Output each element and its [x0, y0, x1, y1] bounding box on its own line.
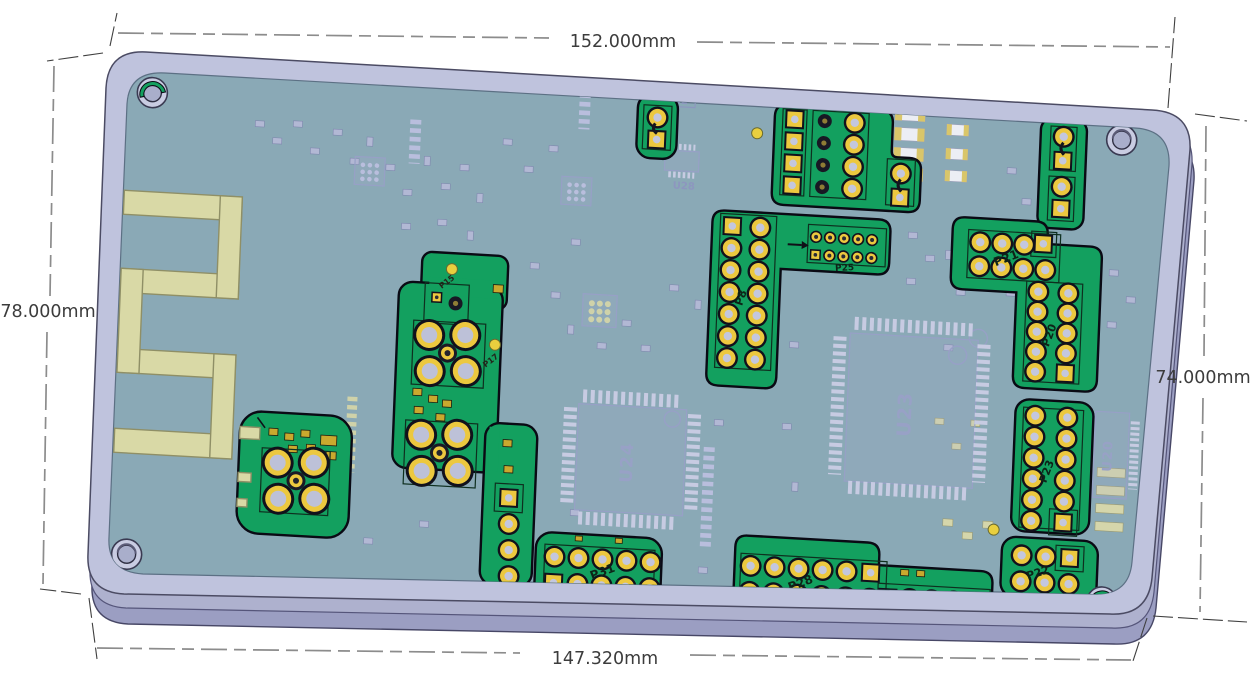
extension-line: [40, 589, 81, 594]
dimension-left-value: 78.000mm: [0, 302, 95, 322]
extension-line: [110, 13, 117, 46]
keepout-region-a: [636, 93, 679, 159]
dimension-bottom-value: 147.320mm: [552, 649, 658, 669]
chip-u24-label: U24: [617, 442, 639, 484]
dimension-right-value: 74.000mm: [1155, 368, 1250, 388]
qfn-footprint-gold: [582, 294, 617, 328]
dimension-top-value: 152.000mm: [570, 32, 676, 52]
dimension-line: [43, 332, 47, 584]
extension-line: [1153, 616, 1247, 622]
dimension-left: 78.000mm: [0, 53, 103, 594]
connector-p22: P22: [1000, 536, 1098, 601]
label-p25: P25: [835, 263, 855, 274]
chip-u24: U24: [566, 395, 695, 524]
chip-u28-label: U28: [673, 181, 695, 193]
pcb-render: U23 U24 U20 U28 FB2: [0, 0, 1250, 700]
keepout-strip-right: [1037, 117, 1087, 230]
chip-u23: U23: [834, 322, 985, 494]
connector-p23: P23: [1011, 399, 1094, 537]
testpoint: [988, 524, 999, 536]
dimension-line: [697, 42, 1170, 47]
extension-line: [1195, 114, 1247, 121]
chip-u20-label: U20: [1100, 440, 1116, 472]
dimension-line: [50, 66, 54, 296]
dimension-line: [1204, 126, 1206, 356]
extension-line: [47, 53, 103, 61]
qfn-footprint: [561, 176, 592, 206]
chip-u23-label: U23: [893, 391, 917, 437]
qfn-footprint: [354, 156, 385, 186]
extension-line: [1168, 17, 1175, 108]
dimension-line: [1200, 398, 1203, 612]
dimension-line: [97, 648, 520, 653]
dimension-line: [118, 33, 549, 38]
testpoint: [751, 127, 762, 139]
rf-pad-square: [236, 410, 353, 538]
cad-viewport: U23 U24 U20 U28 FB2: [0, 0, 1250, 700]
dimension-line: [690, 655, 1131, 660]
mounting-hole-top-right: [1106, 124, 1137, 156]
